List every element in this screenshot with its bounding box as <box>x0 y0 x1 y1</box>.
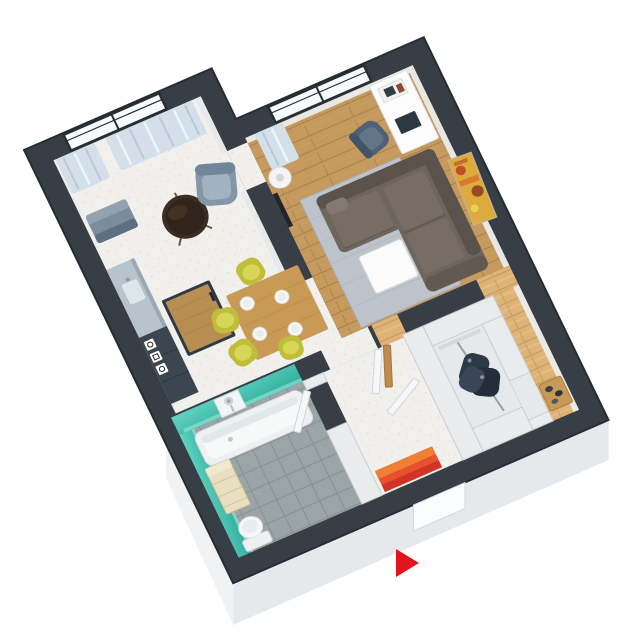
entrance-arrow <box>396 549 419 577</box>
floor-plan <box>0 0 640 640</box>
wooden-door <box>383 345 392 387</box>
floor-plan-stage <box>0 0 640 640</box>
armchair <box>194 162 238 207</box>
